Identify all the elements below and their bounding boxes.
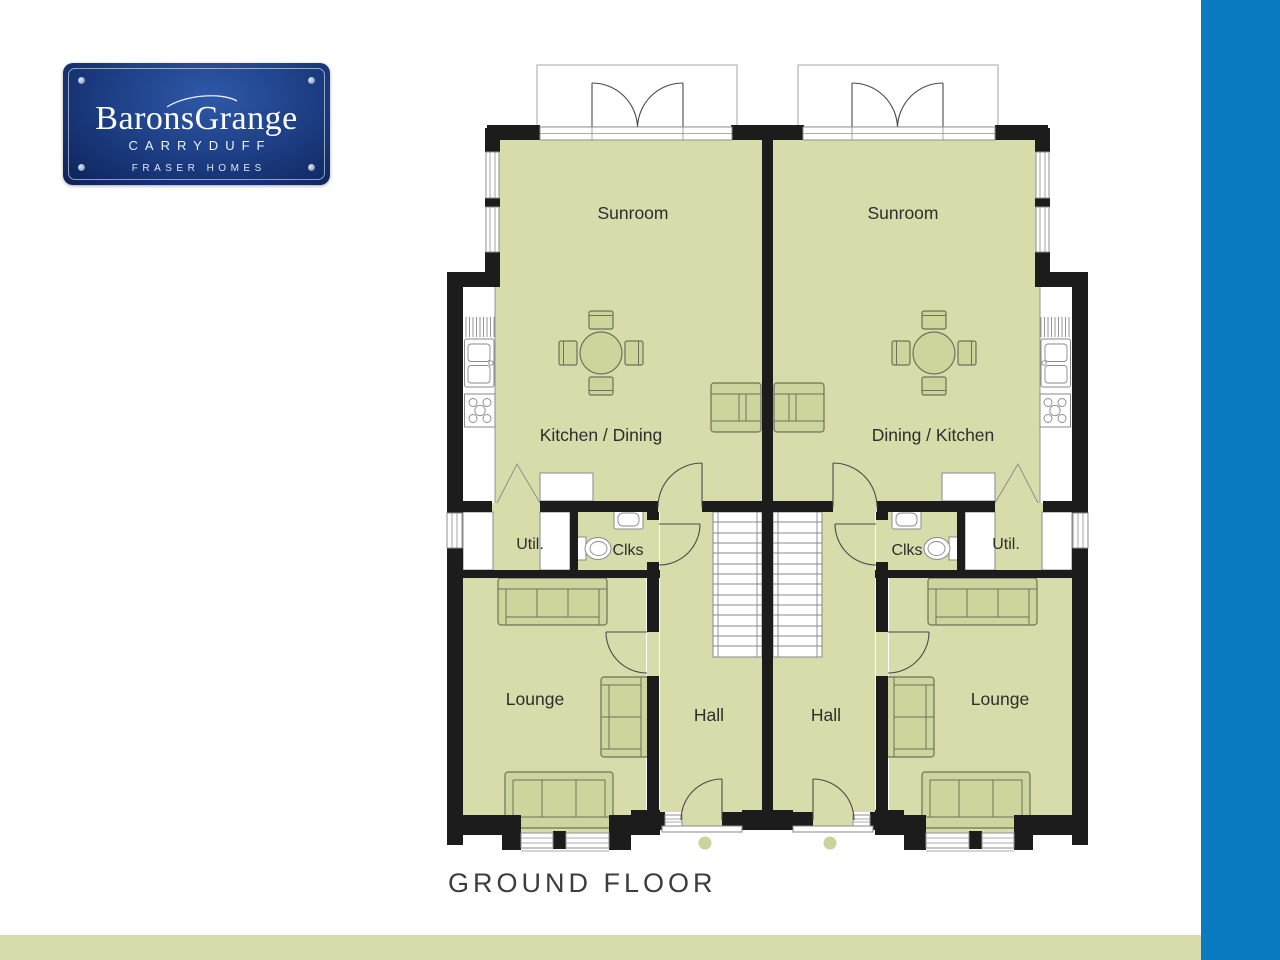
room-label-lounge-right: Lounge: [971, 689, 1029, 709]
room-label-kitchen-left: Kitchen / Dining: [540, 425, 663, 445]
footer-band: [0, 935, 1201, 960]
developer-logo: BaronsGrange CARRYDUFF FRASER HOMES: [63, 63, 330, 185]
room-label-hall-right: Hall: [811, 705, 841, 725]
swash-icon: [159, 94, 249, 110]
floor-title: GROUND FLOOR: [448, 869, 717, 899]
room-label-cloakroom-left: Clks: [612, 542, 643, 559]
unit-right: [768, 65, 1089, 851]
room-label-utility-left: Util.: [516, 536, 544, 553]
room-label-utility-right: Util.: [992, 536, 1020, 553]
floor-plan: Sunroom Sunroom Kitchen / Dining Dining …: [440, 55, 1100, 865]
room-label-sunroom-right: Sunroom: [867, 203, 938, 223]
accent-stripe: [1201, 0, 1280, 960]
room-label-cloakroom-right: Clks: [891, 542, 922, 559]
room-label-lounge-left: Lounge: [506, 689, 564, 709]
room-label-sunroom-left: Sunroom: [597, 203, 668, 223]
room-label-kitchen-right: Dining / Kitchen: [872, 425, 995, 445]
screw-icon: [308, 77, 315, 84]
unit-left: [447, 65, 768, 851]
logo-developer: FRASER HOMES: [63, 164, 330, 174]
screw-icon: [78, 77, 85, 84]
logo-location: CARRYDUFF: [63, 139, 330, 152]
room-label-hall-left: Hall: [694, 705, 724, 725]
